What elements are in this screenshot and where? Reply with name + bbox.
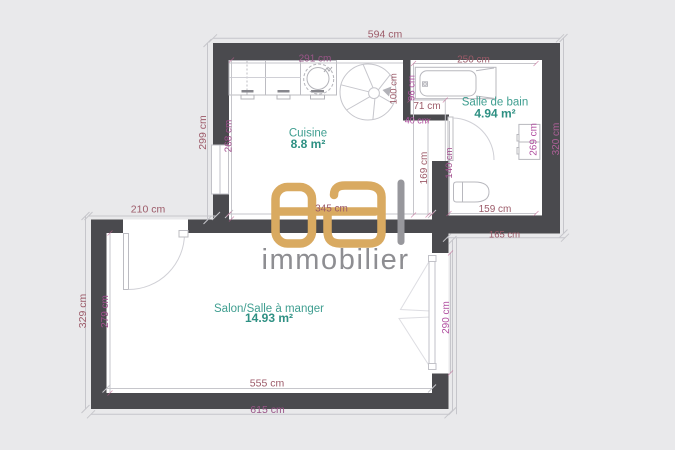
svg-text:4.94 m²: 4.94 m² — [474, 107, 515, 121]
svg-text:320 cm: 320 cm — [551, 123, 562, 156]
svg-text:140 cm: 140 cm — [444, 147, 455, 178]
svg-text:8.8 m²: 8.8 m² — [291, 137, 326, 151]
svg-text:268 cm: 268 cm — [224, 120, 235, 153]
svg-text:329 cm: 329 cm — [77, 294, 89, 329]
svg-text:269 cm: 269 cm — [529, 123, 540, 156]
svg-text:71 cm: 71 cm — [413, 101, 440, 112]
svg-text:96 cm: 96 cm — [407, 75, 418, 101]
svg-text:279 cm: 279 cm — [100, 295, 111, 328]
svg-text:291 cm: 291 cm — [299, 54, 332, 65]
svg-text:159 cm: 159 cm — [479, 204, 512, 215]
svg-text:immobilier: immobilier — [262, 244, 410, 276]
svg-text:14.93 m²: 14.93 m² — [245, 311, 293, 325]
svg-text:299 cm: 299 cm — [197, 115, 209, 150]
svg-text:345 cm: 345 cm — [315, 204, 348, 215]
svg-text:555 cm: 555 cm — [250, 378, 285, 390]
svg-text:210 cm: 210 cm — [131, 204, 166, 216]
svg-text:40 cm: 40 cm — [405, 116, 430, 126]
svg-text:250 cm: 250 cm — [457, 55, 490, 66]
svg-text:594 cm: 594 cm — [368, 29, 403, 41]
svg-text:290 cm: 290 cm — [441, 301, 452, 334]
svg-text:615 cm: 615 cm — [250, 404, 285, 416]
svg-text:165 cm: 165 cm — [489, 230, 520, 241]
svg-text:100 cm: 100 cm — [389, 73, 400, 104]
svg-text:169 cm: 169 cm — [419, 152, 430, 185]
